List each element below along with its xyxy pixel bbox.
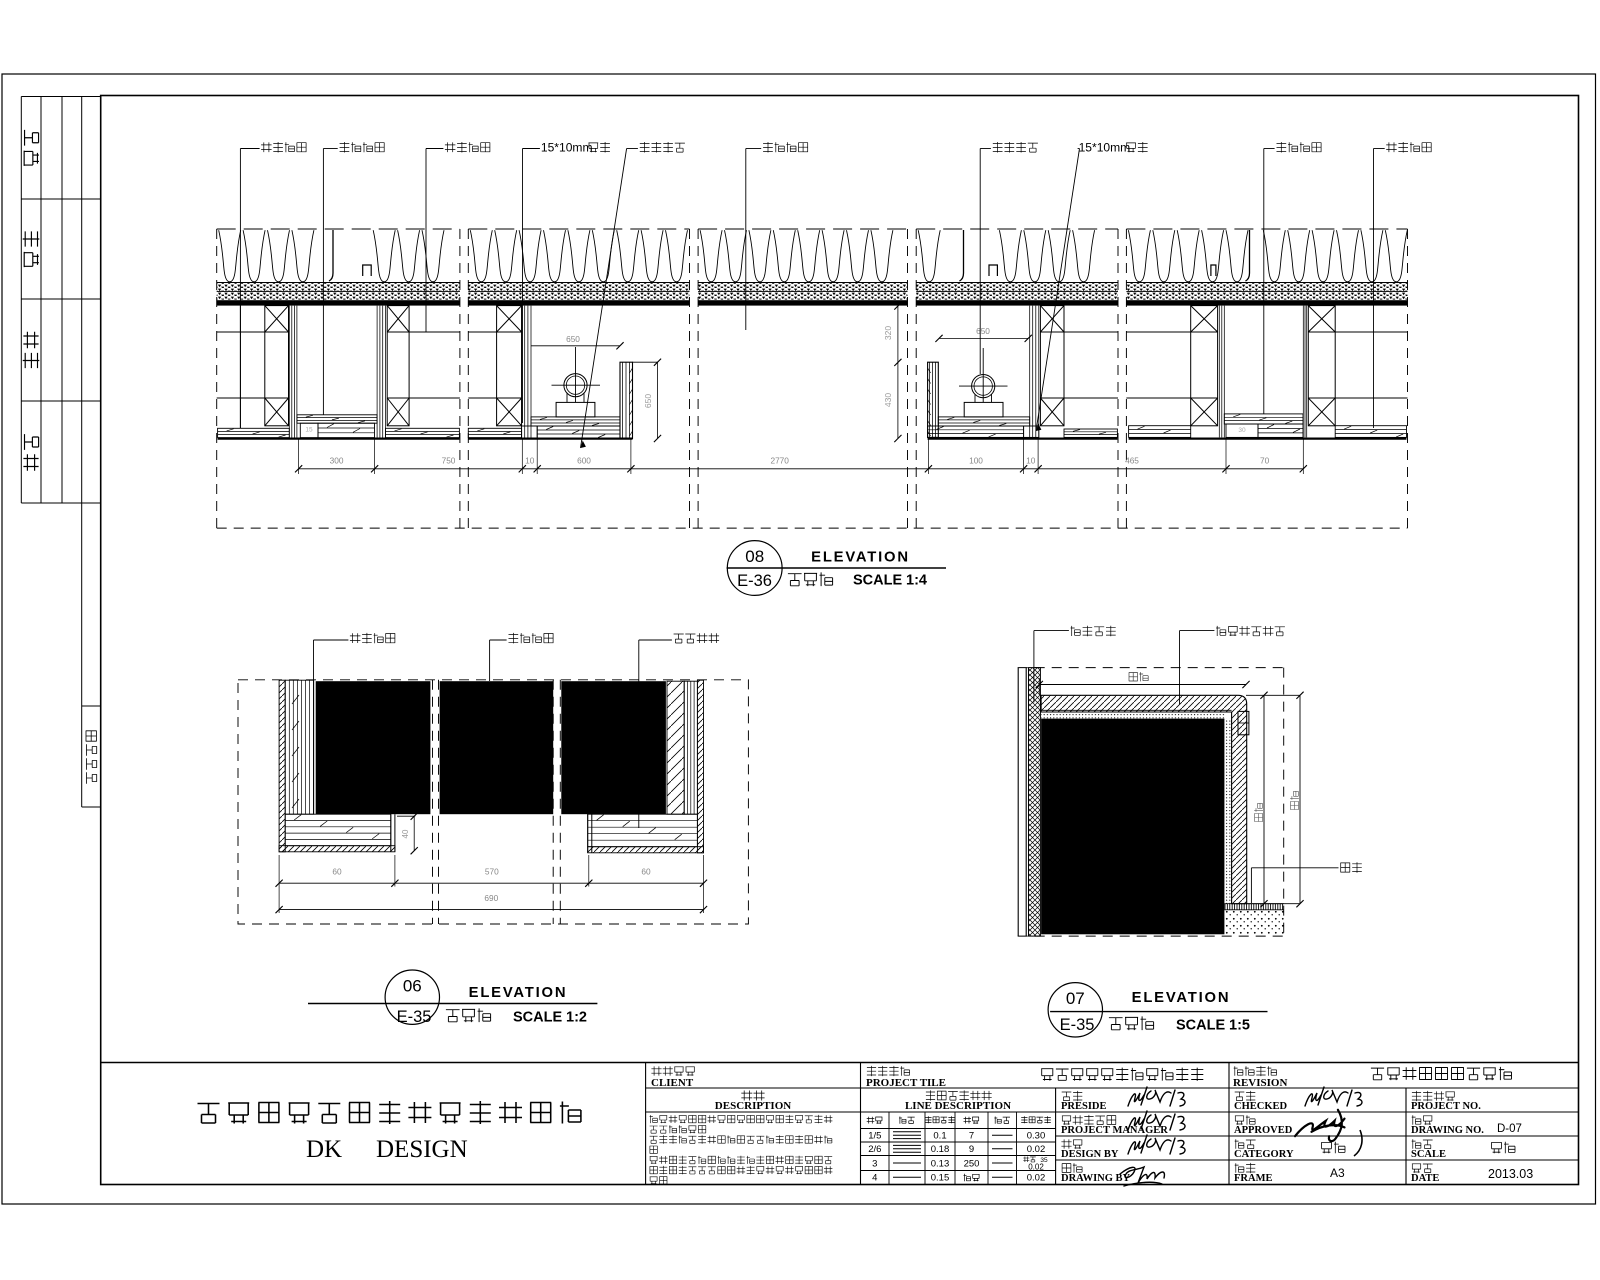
svg-text:4: 4 (872, 1173, 877, 1184)
svg-text:9: 9 (969, 1144, 974, 1155)
svg-text:PROJECT NO.: PROJECT NO. (1411, 1101, 1481, 1112)
svg-text:10: 10 (1026, 456, 1036, 466)
svg-text:LINE DESCRIPTION: LINE DESCRIPTION (905, 1100, 1011, 1112)
svg-text:15: 15 (305, 427, 313, 434)
svg-text:06: 06 (403, 977, 422, 996)
svg-text:DATE: DATE (1411, 1173, 1439, 1184)
svg-text:1:5: 1:5 (1229, 1018, 1250, 1034)
svg-text:0.15: 0.15 (931, 1173, 950, 1184)
svg-text:0.13: 0.13 (931, 1158, 950, 1169)
svg-text:FRAME: FRAME (1234, 1173, 1273, 1184)
svg-text:DK: DK (306, 1136, 342, 1163)
svg-text:08: 08 (745, 547, 764, 566)
svg-text:SCALE: SCALE (853, 573, 902, 589)
svg-text:2770: 2770 (770, 456, 789, 466)
svg-text:DESIGN: DESIGN (376, 1136, 468, 1163)
svg-text:7: 7 (969, 1131, 974, 1142)
svg-text:300: 300 (330, 456, 344, 466)
svg-text:PROJECT MANAGER: PROJECT MANAGER (1061, 1125, 1168, 1136)
svg-text:15*10mm: 15*10mm (1079, 140, 1131, 154)
svg-text:30: 30 (1238, 427, 1246, 434)
svg-text:250: 250 (964, 1158, 980, 1169)
svg-text:40: 40 (401, 829, 410, 838)
svg-text:DESCRIPTION: DESCRIPTION (715, 1100, 791, 1112)
svg-text:0.02: 0.02 (1027, 1173, 1046, 1184)
svg-text:650: 650 (643, 394, 653, 408)
svg-text:ELEVATION: ELEVATION (811, 550, 910, 566)
svg-text:1/5: 1/5 (868, 1131, 881, 1142)
svg-text:1:2: 1:2 (566, 1010, 587, 1026)
svg-text:0.02: 0.02 (1028, 1163, 1044, 1172)
svg-text:10: 10 (525, 456, 535, 466)
svg-text:ELEVATION: ELEVATION (1132, 990, 1231, 1006)
svg-text:APPROVED: APPROVED (1234, 1125, 1293, 1136)
svg-text:650: 650 (976, 326, 990, 336)
svg-text:E-36: E-36 (737, 572, 772, 590)
svg-text:DRAWING NO.: DRAWING NO. (1411, 1125, 1484, 1136)
svg-text:1:4: 1:4 (906, 573, 927, 589)
svg-text:0.30: 0.30 (1027, 1131, 1046, 1142)
svg-text:D-07: D-07 (1497, 1123, 1522, 1135)
svg-text:07: 07 (1066, 989, 1085, 1008)
svg-text:650: 650 (566, 334, 580, 344)
svg-text:CATEGORY: CATEGORY (1234, 1149, 1294, 1160)
svg-text:SCALE: SCALE (1411, 1149, 1446, 1160)
svg-text:60: 60 (641, 867, 651, 877)
svg-text:2/6: 2/6 (868, 1144, 881, 1155)
svg-text:E-35: E-35 (1060, 1016, 1095, 1034)
svg-text:0.18: 0.18 (931, 1144, 950, 1155)
svg-text:CLIENT: CLIENT (651, 1077, 694, 1089)
svg-text:465: 465 (1125, 456, 1139, 466)
svg-text:PRESIDE: PRESIDE (1061, 1101, 1107, 1112)
svg-text:320: 320 (883, 326, 893, 340)
svg-text:2013.03: 2013.03 (1488, 1167, 1533, 1181)
svg-text:60: 60 (332, 867, 342, 877)
svg-text:A3: A3 (1330, 1166, 1345, 1180)
svg-text:100: 100 (969, 456, 983, 466)
svg-text:REVISION: REVISION (1233, 1077, 1287, 1089)
svg-text:15*10mm: 15*10mm (541, 140, 593, 154)
svg-text:DESIGN BY: DESIGN BY (1061, 1149, 1119, 1160)
svg-text:750: 750 (442, 456, 456, 466)
svg-text:3: 3 (872, 1158, 877, 1169)
svg-text:E-35: E-35 (397, 1008, 432, 1026)
svg-text:PROJECT TILE: PROJECT TILE (866, 1077, 946, 1089)
svg-text:SCALE: SCALE (513, 1010, 562, 1026)
svg-text:70: 70 (1260, 456, 1270, 466)
svg-text:ELEVATION: ELEVATION (469, 985, 568, 1001)
svg-text:SCALE: SCALE (1176, 1018, 1225, 1034)
svg-text:600: 600 (577, 456, 591, 466)
svg-text:430: 430 (883, 393, 893, 407)
svg-text:690: 690 (484, 893, 498, 903)
svg-text:CHECKED: CHECKED (1234, 1101, 1288, 1112)
svg-text:570: 570 (485, 867, 499, 877)
svg-text:0.02: 0.02 (1027, 1144, 1046, 1155)
svg-text:0.1: 0.1 (933, 1131, 946, 1142)
